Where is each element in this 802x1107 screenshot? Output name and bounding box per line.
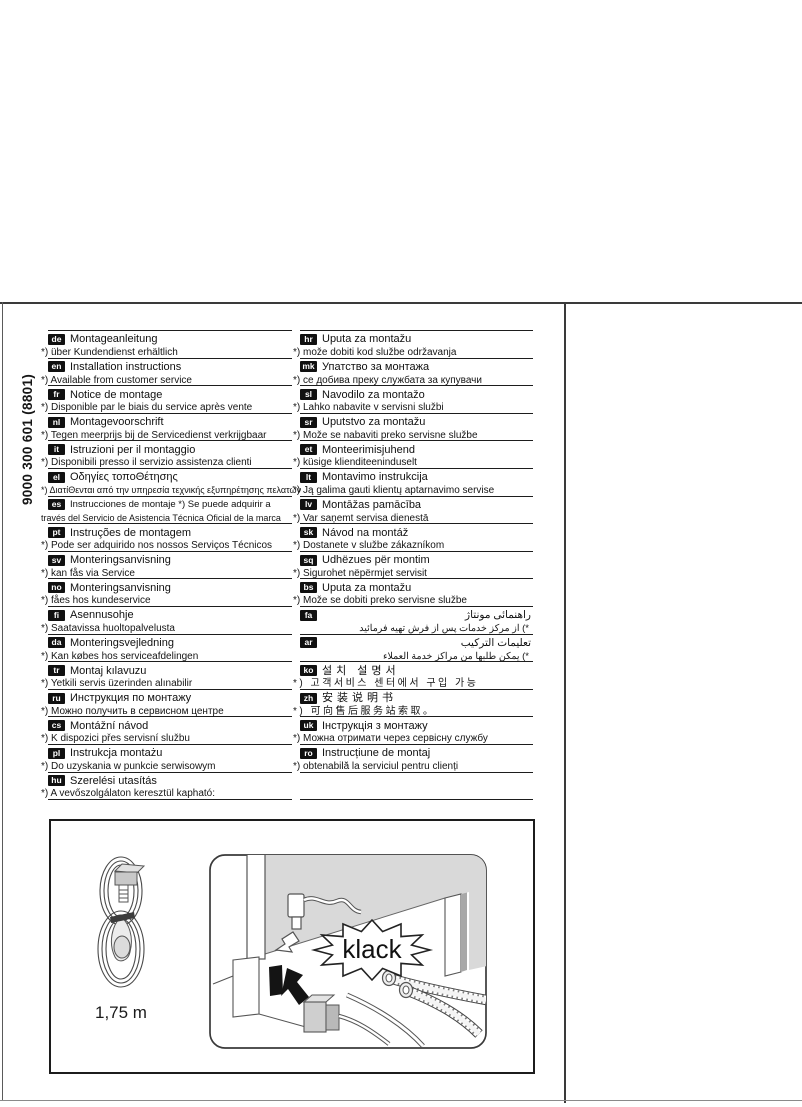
entry-footnote: través del Servicio de Asistencia Técnic… [41, 513, 292, 524]
entry-title: Notice de montage [70, 389, 162, 401]
entry-separator-rule [48, 744, 292, 745]
base-foot [233, 957, 259, 1017]
entry-footnote: *) Do uzyskania w punkcie serwisowym [41, 761, 292, 772]
entry-separator-rule [48, 468, 292, 469]
appliance-panel-illustration: klack [209, 854, 487, 1049]
entry-title: Asennusohje [70, 609, 134, 621]
language-code-badge: de [48, 334, 65, 345]
lang-entry: de Montageanleitung *) über Kundendienst… [41, 330, 292, 358]
entry-footnote: *) Dostanete v službe zákazníkom [293, 540, 533, 551]
entry-footnote: *) Можна отримати через сервісну службу [293, 733, 533, 744]
lang-entry: el Οδηγίες τοποΘέτησης *) ΔιατίΘενται απ… [41, 468, 292, 496]
language-code-badge: cs [48, 720, 65, 731]
entry-title: Uputstvo za montažu [322, 416, 425, 428]
entry-footnote: *) از مرکز خدمات پس از فرش تهیه فرمائید [293, 623, 533, 634]
language-code-badge: fr [48, 389, 65, 400]
manual-page: 9000 300 601 (8801) de Montageanleitung … [0, 0, 802, 1107]
entry-title: Navodilo za montažo [322, 389, 425, 401]
entry-footnote: *) Sigurohet nëpërmjet servisit [293, 568, 533, 579]
entry-title: Інструкція з монтажу [322, 720, 428, 732]
entry-footnote: *) ΔιατίΘενται από την υπηρεσία τεχνικής… [41, 485, 292, 496]
entry-footnote: *) kan fås via Service [41, 568, 292, 579]
lang-entry: mk Упатство за монтажа *) се добива прек… [293, 358, 533, 386]
lang-entry: en Installation instructions *) Availabl… [41, 358, 292, 386]
language-code-badge: ro [300, 748, 317, 759]
entry-title: Instrucțiune de montaj [322, 747, 430, 759]
entry-title: Montagevoorschrift [70, 416, 164, 428]
language-code-badge: es [48, 499, 65, 510]
language-code-badge: uk [300, 720, 317, 731]
lang-entry: nl Montagevoorschrift *) Tegen meerprijs… [41, 413, 292, 441]
entry-separator-rule [48, 330, 292, 331]
entry-title: تعليمات التركيب [322, 637, 533, 649]
lang-entry: hu Szerelési utasítás *) A vevőszolgálat… [41, 772, 292, 800]
entry-title: Instruções de montagem [70, 527, 191, 539]
entry-title: راهنمائی مونتاژ [322, 609, 533, 621]
language-code-badge: mk [300, 361, 317, 372]
entry-title: Monteringsanvisning [70, 554, 171, 566]
language-code-badge: nl [48, 417, 65, 428]
lang-entry: hr Uputa za montažu *) može dobiti kod s… [293, 330, 533, 358]
entry-title: Instrukcja montażu [70, 747, 162, 759]
lang-entry: pt Instruções de montagem *) Pode ser ad… [41, 523, 292, 551]
entry-title: Uputa za montažu [322, 333, 411, 345]
entry-title: Montageanleitung [70, 333, 157, 345]
language-code-badge: hu [48, 775, 65, 786]
entry-title: Installation instructions [70, 361, 181, 373]
entry-title: Instrucciones de montaje *) Se puede adq… [70, 499, 271, 511]
entry-footnote: *) Lahko nabavite v servisni službi [293, 402, 533, 413]
cord-connector [115, 864, 144, 902]
language-code-badge: ru [48, 693, 65, 704]
entry-title: 설치 설명서 [322, 665, 400, 677]
lang-entry: et Monteerimisjuhend *) küsige kliendite… [293, 440, 533, 468]
entry-footnote: *) Kan købes hos serviceafdelingen [41, 651, 292, 662]
lang-column-left: de Montageanleitung *) über Kundendienst… [41, 330, 292, 800]
entry-footnote: *) Pode ser adquirido nos nossos Serviço… [41, 540, 292, 551]
entry-separator-rule [300, 468, 533, 469]
entry-title: 安装说明书 [322, 692, 397, 704]
language-code-badge: el [48, 472, 65, 483]
lang-entry: sq Udhëzues për montim *) Sigurohet nëpë… [293, 551, 533, 579]
entry-footnote: *) Var saņemt servisa dienestā [293, 513, 533, 524]
lang-column-right: hr Uputa za montažu *) može dobiti kod s… [293, 330, 533, 800]
language-code-badge: lv [300, 499, 317, 510]
language-code-badge: it [48, 444, 65, 455]
left-border-rule [2, 302, 3, 1101]
language-code-badge: tr [48, 665, 65, 676]
bottom-rule [0, 1100, 802, 1101]
entry-footnote: *) Available from customer service [41, 375, 292, 386]
language-code-badge: da [48, 637, 65, 648]
column-divider-rule [564, 302, 566, 1103]
entry-footnote: *) Može se nabaviti preko servisne služb… [293, 430, 533, 441]
entry-footnote: *) A vevőszolgálaton keresztül kapható: [41, 788, 292, 799]
language-code-badge: zh [300, 693, 317, 704]
lang-entry: no Monteringsanvisning *) fåes hos kunde… [41, 578, 292, 606]
lang-entry: sk Návod na montáž *) Dostanete v službe… [293, 523, 533, 551]
lang-entry: ar تعليمات التركيب *) يمكن طلبها من مراك… [293, 634, 533, 662]
socket-slot [269, 965, 283, 996]
entry-footnote: *) Ją galima gauti klientų aptarnavimo s… [293, 485, 533, 496]
language-code-badge: hr [300, 334, 317, 345]
entry-title: Szerelési utasítás [70, 775, 157, 787]
entry-title: Monteerimisjuhend [322, 444, 415, 456]
entry-footnote: *) Tegen meerprijs bij de Servicedienst … [41, 430, 292, 441]
lang-entry: da Monteringsvejledning *) Kan købes hos… [41, 634, 292, 662]
language-code-badge: sk [300, 527, 317, 538]
entry-title: Monteringsvejledning [70, 637, 174, 649]
entry-title: Istruzioni per il montaggio [70, 444, 195, 456]
entry-separator-rule [300, 606, 533, 607]
language-code-badge: sq [300, 555, 317, 566]
language-code-badge: ko [300, 665, 317, 676]
entry-footnote: *) Можно получить в сервисном центре [41, 706, 292, 717]
right-edge-strip [445, 894, 461, 976]
entry-title: Montaj kılavuzu [70, 665, 146, 677]
lang-entry: zh 安装说明书 *) 可向售后服务站索取。 [293, 689, 533, 717]
lang-entry: sr Uputstvo za montažu *) Može se nabavi… [293, 413, 533, 441]
lang-entry: sv Monteringsanvisning *) kan fås via Se… [41, 551, 292, 579]
entry-footnote: *) 可向售后服务站索取。 [293, 706, 533, 717]
entry-title: Udhëzues për montim [322, 554, 430, 566]
lang-entry: pl Instrukcja montażu *) Do uzyskania w … [41, 744, 292, 772]
language-code-badge: fa [300, 610, 317, 621]
entry-title: Montážní návod [70, 720, 148, 732]
entry-footnote: *) Disponible par le biais du service ap… [41, 402, 292, 413]
lang-entry: lv Montāžas pamācība *) Var saņemt servi… [293, 496, 533, 524]
cable-length-label: 1,75 m [79, 1003, 163, 1023]
language-code-badge: et [300, 444, 317, 455]
lang-entry: ru Инструкция по монтажу *) Можно получи… [41, 689, 292, 717]
lang-entry [293, 772, 533, 800]
lang-entry: fr Notice de montage *) Disponible par l… [41, 385, 292, 413]
klack-label: klack [342, 934, 402, 964]
language-code-badge: no [48, 582, 65, 593]
entry-footnote: *) Može se dobiti preko servisne službe [293, 595, 533, 606]
entry-footnote: *) Disponibili presso il servizio assist… [41, 457, 292, 468]
language-code-badge: sr [300, 417, 317, 428]
language-code-badge: en [48, 361, 65, 372]
product-code-vertical: 9000 300 601 (8801) [20, 327, 35, 505]
lang-entry: bs Uputa za montažu *) Može se dobiti pr… [293, 578, 533, 606]
language-code-badge: pt [48, 527, 65, 538]
entry-footnote: *) K dispozici přes servisní službu [41, 733, 292, 744]
entry-footnote: *) Saatavissa huoltopalvelusta [41, 623, 292, 634]
entry-title: Montāžas pamācība [322, 499, 421, 511]
language-code-badge: sv [48, 555, 65, 566]
entry-title: Uputa za montažu [322, 582, 411, 594]
entry-footnote: *) се добива преку службата за купувачи [293, 375, 533, 386]
entry-footnote: *) može dobiti kod službe održavanja [293, 347, 533, 358]
language-code-badge: fi [48, 610, 65, 621]
language-code-badge: sl [300, 389, 317, 400]
lang-entry: ko 설치 설명서 *) 고객서비스 센터에서 구입 가능 [293, 661, 533, 689]
entry-title: Инструкция по монтажу [70, 692, 191, 704]
language-code-badge: pl [48, 748, 65, 759]
entry-title: Упатство за монтажа [322, 361, 429, 373]
entry-separator-rule [300, 330, 533, 331]
language-code-badge: bs [300, 582, 317, 593]
entry-footnote: *) fåes hos kundeservice [41, 595, 292, 606]
entry-title: Montavimo instrukcija [322, 471, 428, 483]
entry-title: Οδηγίες τοποΘέτησης [70, 471, 178, 483]
language-code-badge: ar [300, 637, 317, 648]
language-code-badge: lt [300, 472, 317, 483]
lang-entry: fi Asennusohje *) Saatavissa huoltopalve… [41, 606, 292, 634]
lang-entry: es Instrucciones de montaje *) Se puede … [41, 496, 292, 524]
lang-entry: fa راهنمائی مونتاژ *) از مرکز خدمات پس ا… [293, 606, 533, 634]
lang-entry: it Istruzioni per il montaggio *) Dispon… [41, 440, 292, 468]
entry-footnote: *) obtenabilă la serviciul pentru clienț… [293, 761, 533, 772]
entry-footnote: *) 고객서비스 센터에서 구입 가능 [293, 678, 533, 689]
lang-entry: cs Montážní návod *) K dispozici přes se… [41, 716, 292, 744]
entry-separator-rule [48, 606, 292, 607]
entry-footnote: *) Yetkili servis üzerinden alınabilir [41, 678, 292, 689]
entry-footnote: *) يمكن طلبها من مراكز خدمة العملاء [293, 651, 533, 662]
lang-entry: ro Instrucțiune de montaj *) obtenabilă … [293, 744, 533, 772]
side-panel-strip [247, 854, 265, 959]
entry-separator-rule [300, 744, 533, 745]
entry-footnote: *) über Kundendienst erhältlich [41, 347, 292, 358]
top-rule [0, 302, 802, 304]
lang-entry: sl Navodilo za montažo *) Lahko nabavite… [293, 385, 533, 413]
lang-entry: tr Montaj kılavuzu *) Yetkili servis üze… [41, 661, 292, 689]
installation-illustration-box: 1,75 m [49, 819, 535, 1074]
entry-title: Návod na montáž [322, 527, 408, 539]
entry-footnote: *) küsige klienditeeninduselt [293, 457, 533, 468]
power-cord-illustration [91, 849, 151, 997]
lang-entry: lt Montavimo instrukcija *) Ją galima ga… [293, 468, 533, 496]
entry-title: Monteringsanvisning [70, 582, 171, 594]
lang-entry: uk Інструкція з монтажу *) Можна отримат… [293, 716, 533, 744]
